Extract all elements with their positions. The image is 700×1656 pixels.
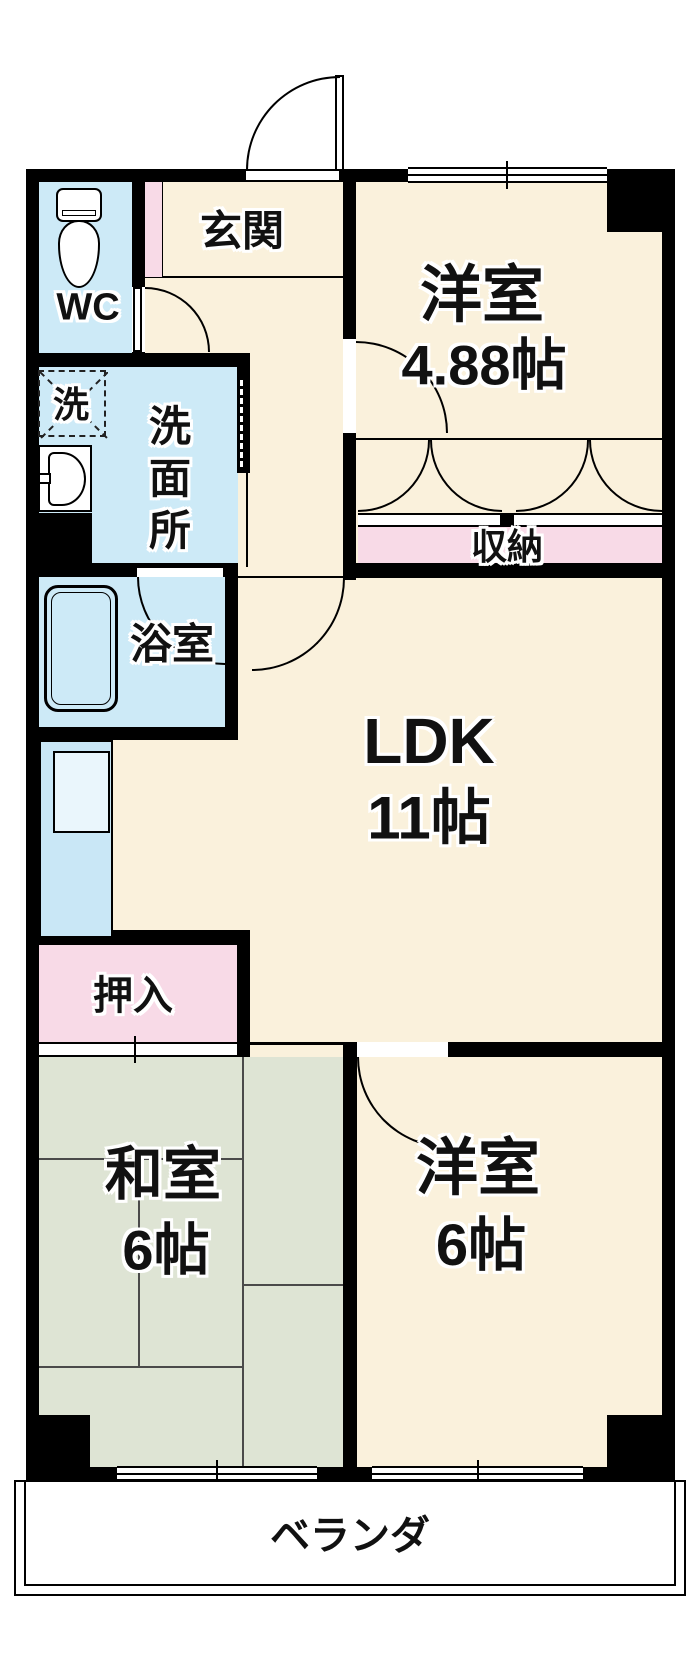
bath-label: 浴室 [130,611,214,672]
wall-bath-bottom [26,727,238,740]
ldk-label: LDK [363,704,495,778]
genkan-step [143,182,163,278]
tatami-line-h3 [39,1366,243,1368]
oshiire-door-tick [134,1036,136,1063]
western2-door-gap [357,1042,448,1057]
wall-ldk-western2 [448,1042,662,1057]
entrance-door-arc [246,76,340,170]
wall-oshiire-post [237,930,250,1057]
western1-size-label: 4.88帖 [402,321,567,402]
western1-window-tick [506,161,508,189]
wc-label: WC [56,287,119,330]
genkan-label: 玄関 [200,198,284,259]
western2-label: 洋室 [416,1117,540,1207]
line-ldk-washitsu [250,1042,343,1045]
kitchen-sink [53,751,110,833]
washroom-door-dashed [240,380,243,467]
wall-washroom-right [237,353,250,473]
washroom-label: 洗 面 所 [149,401,191,557]
western1-door-gap [343,339,356,433]
washbasin-icon [38,445,92,512]
bathtub-icon [44,585,118,712]
oshiire-label: 押入 [93,963,173,1021]
oshiire-sliding-door [39,1042,237,1057]
kitchen-counter [39,740,113,938]
veranda-label: ベランダ [270,1503,430,1561]
corner-block-bottom-right [607,1415,675,1480]
wc-door-leaf [133,287,142,352]
tatami-line-v1 [242,1057,244,1467]
line-genkan-hall [163,276,343,278]
wall-right [662,169,675,1480]
wall-bath-right [225,563,238,740]
wall-washitsu-western2 [343,1042,357,1467]
entrance-threshold [246,169,339,182]
wall-washroom-top [26,353,238,367]
bath-door-gap [137,568,223,577]
wall-washroom-right-thin [246,473,248,567]
corner-block-bottom-left [26,1415,90,1480]
western2-size-label: 6帖 [436,1198,526,1282]
ldk-size-label: 11帖 [367,770,490,857]
washitsu-label: 和室 [105,1127,221,1211]
storage-label: 収納 [471,518,543,570]
toilet-icon [56,188,106,292]
washitsu-size-label: 6帖 [122,1206,209,1287]
wall-block-mid-left [26,513,92,577]
tatami-line-h2 [243,1284,343,1286]
laundry-label: 洗 [53,376,89,428]
corner-block-top-right [607,169,675,232]
floor-plan: 玄関 WC 洗 洗 面 所 浴室 洋室 4.88帖 収納 LDK 11帖 押入 … [0,0,700,1656]
